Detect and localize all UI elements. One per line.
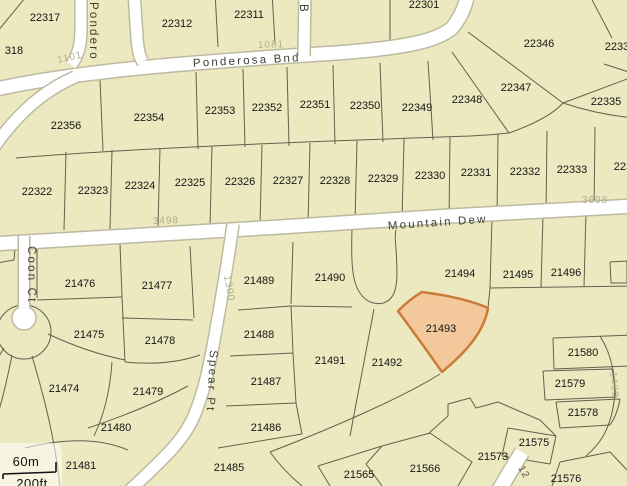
parcel-label: 22354 [134,112,165,124]
parcel-label: 21487 [251,376,282,388]
parcel-label: 21486 [251,422,282,434]
parcel-label: 21485 [214,462,245,474]
parcel-label: 22327 [273,175,304,187]
parcel-label: 22324 [125,180,156,192]
parcel-label: 21488 [244,329,275,341]
street-label-coon-ct: Coon Ct [25,246,37,304]
parcel-label: 22332 [510,166,541,178]
parcel-label: 22348 [452,94,483,106]
parcel-label: 22346 [524,38,555,50]
parcel-label: 21496 [551,267,582,279]
parcel-label: 21494 [445,268,476,280]
parcel-label: 21474 [49,383,80,395]
parcel-label: 22333 [557,164,588,176]
parcel-label: 22351 [300,99,331,111]
parcel-label: 22334 [614,161,627,173]
parcel-label: 21481 [66,460,97,472]
parcel-label: 22328 [320,175,351,187]
parcel-label: 21478 [145,335,176,347]
parcel-label: 21576 [551,473,582,485]
parcel-label: 21491 [315,355,346,367]
parcel-label: 21575 [519,437,550,449]
scale-bar: 60m 200ft [0,443,62,486]
parcel-label: 22322 [22,186,53,198]
parcel-map-viewport[interactable]: 1101 1081 3498 3698 1300 1400 12 Pondero… [0,0,627,486]
road-upper-branch [134,0,143,62]
selected-parcel-label: 21493 [426,323,457,335]
parcel-label: 21580 [568,347,599,359]
parcel-label: 22323 [78,185,109,197]
parcel-label: 22301 [409,0,440,11]
parcel-label: 22350 [350,100,381,112]
parcel-map-canvas[interactable]: 1101 1081 3498 3698 1300 1400 12 Pondero… [0,0,627,486]
parcel-label: 22312 [162,18,193,30]
parcel-label: 21480 [101,422,132,434]
parcel-label: 22352 [252,102,283,114]
parcel-label: 22329 [368,173,399,185]
scale-metric-label: 60m [13,454,40,469]
parcel-label: 21479 [133,386,164,398]
address-marker: 1081 [258,39,285,51]
parcel-label: 22335 [591,96,622,108]
street-label-ponderosa-vertical: Pondero [87,2,99,61]
parcel-label: 21477 [142,280,173,292]
parcel-label: 21489 [244,275,275,287]
parcel-label: 22347 [501,82,532,94]
parcel-label: 21566 [410,463,441,475]
parcel-label: 21578 [568,407,599,419]
parcel-label: 22317 [30,12,61,24]
parcel-label: 21495 [503,269,534,281]
parcel-label: 21573 [478,451,509,463]
parcel-label: 318 [5,45,23,57]
parcel-label: 21476 [65,278,96,290]
parcel-label: 22336 [605,41,627,53]
parcel-label: 21579 [555,378,586,390]
parcel-label: 22325 [175,177,206,189]
parcel-label: 22311 [234,9,264,21]
parcel-label: 21492 [372,357,403,369]
parcel-label: 22353 [205,105,236,117]
parcel-label: 22349 [402,102,433,114]
street-label-b-street: B [297,4,309,14]
parcel-label: 21565 [344,469,375,481]
scale-imperial-label: 200ft [16,476,47,486]
address-marker: 1400 [607,371,620,398]
parcel-label: 21475 [74,329,105,341]
parcel-label: 22330 [415,170,446,182]
parcel-label: 21490 [315,272,346,284]
address-marker: 3698 [582,195,608,206]
address-marker: 3498 [153,215,180,227]
parcel-label: 22326 [225,176,256,188]
parcel-label: 22356 [51,120,82,132]
parcel-label: 22331 [461,167,492,179]
